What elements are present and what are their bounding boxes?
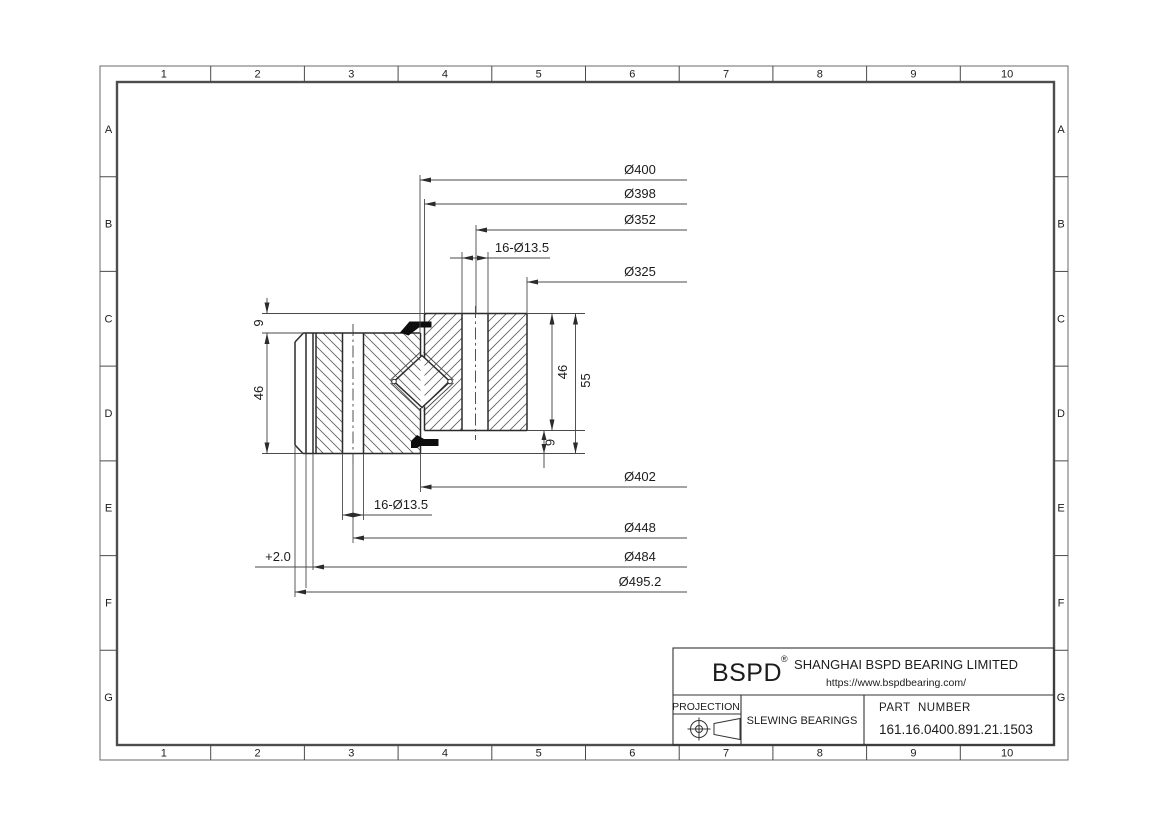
dim-label-height-46-left: 46 (251, 386, 266, 400)
grid-row-label-left: E (105, 503, 112, 515)
inner-ring-bolt-hole (462, 313, 488, 432)
grid-col-label-top: 9 (910, 69, 916, 81)
grid-row-label-left: B (105, 219, 112, 231)
grid-col-label-bottom: 3 (348, 748, 354, 760)
grid-row-label-left: C (105, 313, 113, 325)
projection-label: PROJECTION (672, 701, 740, 713)
bearing-section (295, 306, 527, 464)
grid-col-label-bottom: 2 (254, 748, 260, 760)
title-block: BSPD ® SHANGHAI BSPD BEARING LIMITED htt… (672, 648, 1054, 745)
grid-row-label-right: D (1057, 408, 1065, 420)
part-number-value: 161.16.0400.891.21.1503 (879, 722, 1033, 737)
grid-col-label-bottom: 10 (1001, 748, 1013, 760)
grid-row-label-right: G (1057, 692, 1066, 704)
dim-label-od402: Ø402 (624, 469, 656, 484)
grid-col-label-bottom: 7 (723, 748, 729, 760)
grid-row-label-left: D (105, 408, 113, 420)
grid-col-label-bottom: 5 (536, 748, 542, 760)
grid-col-label-bottom: 8 (817, 748, 823, 760)
geared-ring-hatch (316, 333, 421, 454)
brand-logo: BSPD (712, 659, 782, 687)
dim-label-od484: Ø484 (624, 549, 656, 564)
extension-lines (262, 175, 585, 597)
dim-label-bolt-holes-bottom: 16-Ø13.5 (374, 497, 428, 512)
grid-col-label-top: 7 (723, 69, 729, 81)
grid-row-label-right: A (1057, 124, 1065, 136)
grid-col-label-bottom: 9 (910, 748, 916, 760)
grid-reference-layer: 1122334455667788991010AABBCCDDEEFFGG (100, 66, 1068, 760)
grid-col-label-top: 2 (254, 69, 260, 81)
product-type: SLEWING BEARINGS (747, 715, 858, 727)
dim-label-od398: Ø398 (624, 186, 656, 201)
dim-label-od448: Ø448 (624, 520, 656, 535)
grid-col-label-top: 1 (161, 69, 167, 81)
grid-row-label-right: B (1057, 219, 1064, 231)
grid-col-label-bottom: 6 (629, 748, 635, 760)
dim-label-height-9-top: 9 (251, 319, 266, 326)
grid-col-label-top: 3 (348, 69, 354, 81)
dim-label-od352: Ø352 (624, 212, 656, 227)
roller-spacer-left (392, 379, 397, 384)
roller-spacer-right (448, 379, 453, 384)
grid-col-label-bottom: 1 (161, 748, 167, 760)
dim-label-height-55: 55 (578, 373, 593, 387)
grid-col-label-bottom: 4 (442, 748, 448, 760)
projection-symbol-icon (688, 718, 741, 741)
grid-row-label-left: A (105, 124, 113, 136)
seal-bottom (411, 435, 439, 448)
grid-row-label-left: G (104, 692, 113, 704)
grid-col-label-top: 6 (629, 69, 635, 81)
company-name: SHANGHAI BSPD BEARING LIMITED (794, 657, 1018, 672)
sheet-frame: 1122334455667788991010AABBCCDDEEFFGG (100, 66, 1068, 760)
grid-row-label-right: F (1058, 597, 1065, 609)
dim-label-height-46-right: 46 (555, 365, 570, 379)
dim-label-gear-allowance: +2.0 (265, 549, 291, 564)
dim-label-bolt-holes-top: 16-Ø13.5 (495, 240, 549, 255)
dim-label-od325: Ø325 (624, 264, 656, 279)
grid-col-label-top: 4 (442, 69, 448, 81)
grid-row-label-right: E (1057, 503, 1064, 515)
grid-col-label-top: 8 (817, 69, 823, 81)
grid-row-label-right: C (1057, 313, 1065, 325)
grid-col-label-top: 10 (1001, 69, 1013, 81)
dim-label-od495: Ø495.2 (619, 574, 662, 589)
dim-label-height-9-bottom: 9 (543, 439, 558, 446)
cad-drawing-svg: 1122334455667788991010AABBCCDDEEFFGG (0, 0, 1170, 827)
drawing-sheet: 1122334455667788991010AABBCCDDEEFFGG (0, 0, 1170, 827)
registered-mark: ® (781, 654, 788, 664)
part-number-label: PART NUMBER (879, 702, 971, 714)
company-website: https://www.bspdbearing.com/ (826, 677, 966, 689)
grid-row-label-left: F (105, 597, 112, 609)
grid-col-label-top: 5 (536, 69, 542, 81)
dim-label-od400: Ø400 (624, 162, 656, 177)
